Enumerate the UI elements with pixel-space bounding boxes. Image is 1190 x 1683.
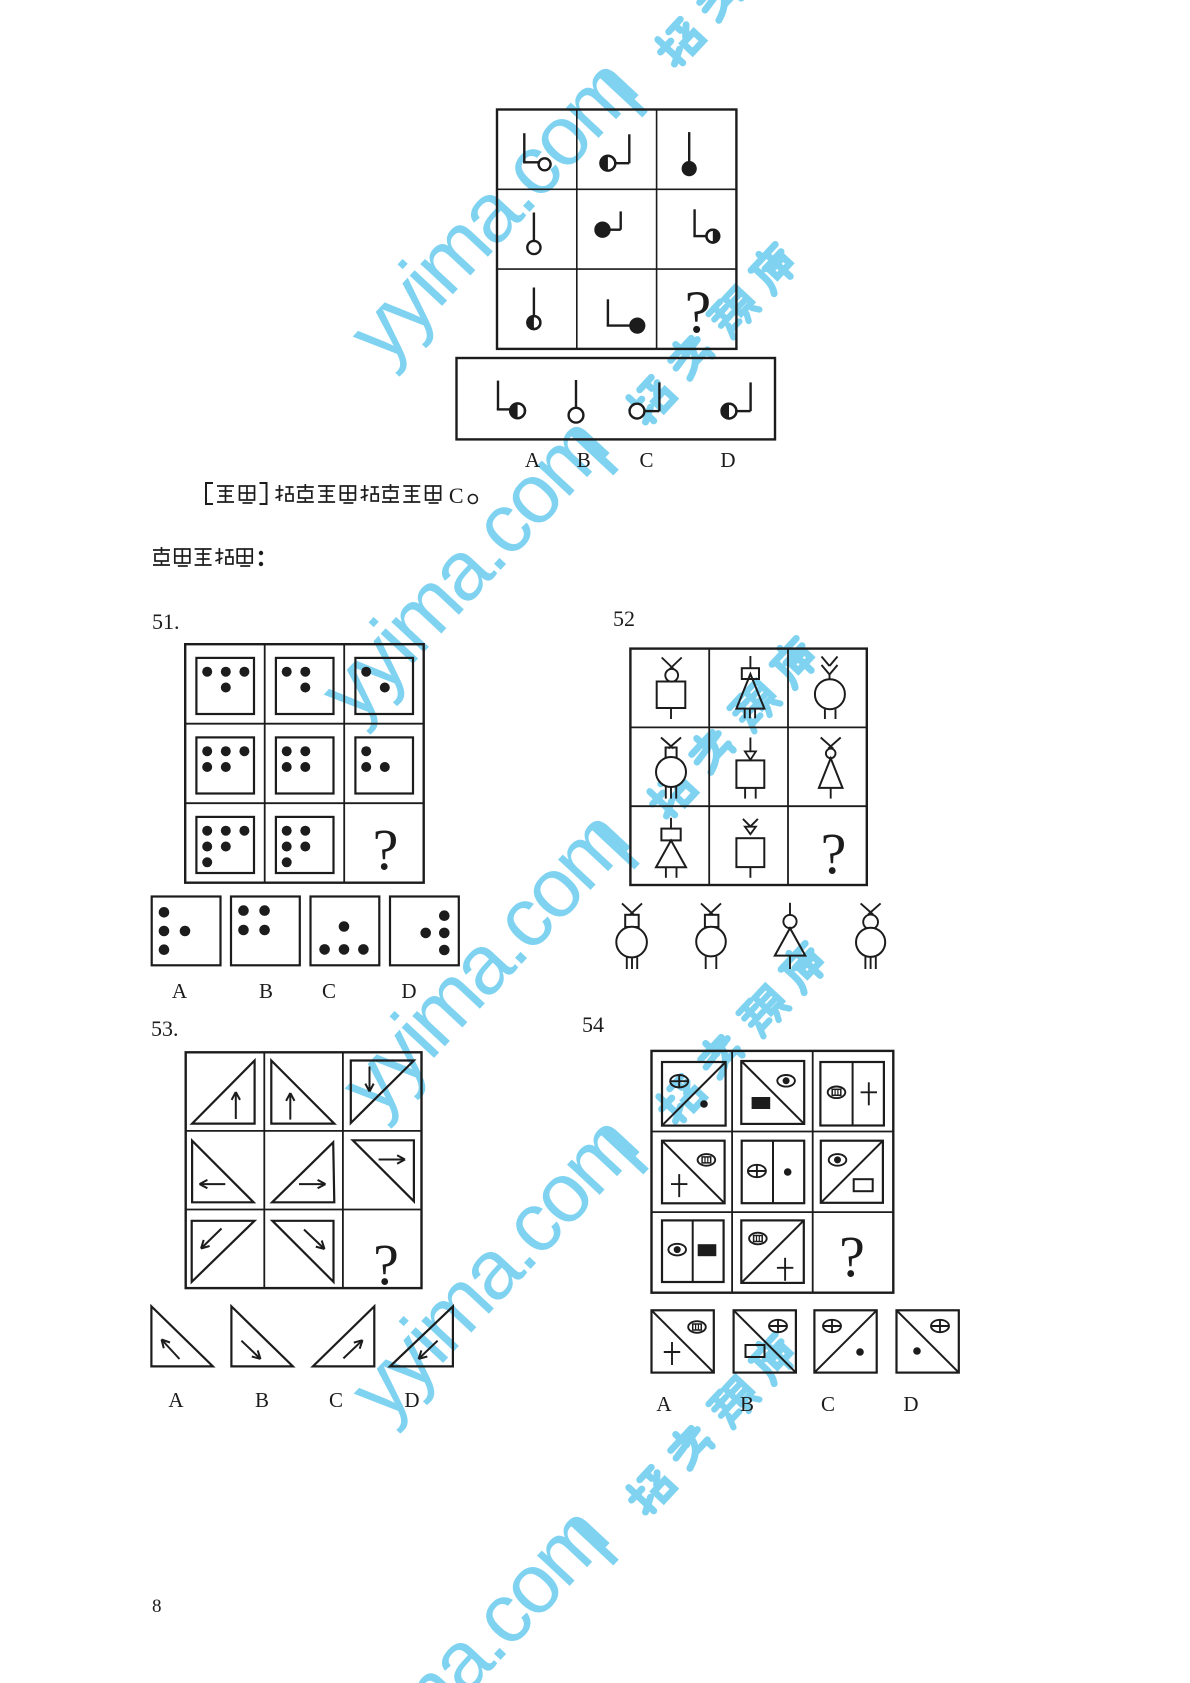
svg-text:B: B <box>740 1392 754 1416</box>
svg-text:A: A <box>172 979 188 1003</box>
svg-text:?: ? <box>821 821 847 886</box>
svg-text:A: A <box>525 448 541 472</box>
svg-text:C: C <box>322 979 336 1003</box>
svg-text:B: B <box>259 979 273 1003</box>
svg-text:A: A <box>656 1392 672 1416</box>
svg-text:52: 52 <box>613 606 635 631</box>
svg-text:yyima.com: yyima.com <box>329 41 653 379</box>
svg-text:B: B <box>255 1388 269 1412</box>
svg-text:51.: 51. <box>152 609 180 634</box>
svg-text:D: D <box>903 1392 918 1416</box>
svg-text:C: C <box>329 1388 343 1412</box>
svg-text:?: ? <box>373 1232 399 1297</box>
svg-text:D: D <box>404 1388 419 1412</box>
svg-text:?: ? <box>839 1224 865 1289</box>
svg-text:?: ? <box>373 817 399 882</box>
svg-text:B: B <box>577 448 591 472</box>
svg-text:C: C <box>639 448 653 472</box>
svg-text:D: D <box>720 448 735 472</box>
svg-text:D: D <box>401 979 416 1003</box>
svg-text:8: 8 <box>152 1596 162 1617</box>
svg-text:54: 54 <box>582 1012 604 1037</box>
svg-text:53.: 53. <box>151 1016 179 1041</box>
svg-text:A: A <box>168 1388 184 1412</box>
svg-text:C: C <box>449 483 464 508</box>
svg-text:C: C <box>821 1392 835 1416</box>
svg-text:?: ? <box>685 279 712 345</box>
svg-text:yyima.com: yyima.com <box>300 1489 624 1683</box>
